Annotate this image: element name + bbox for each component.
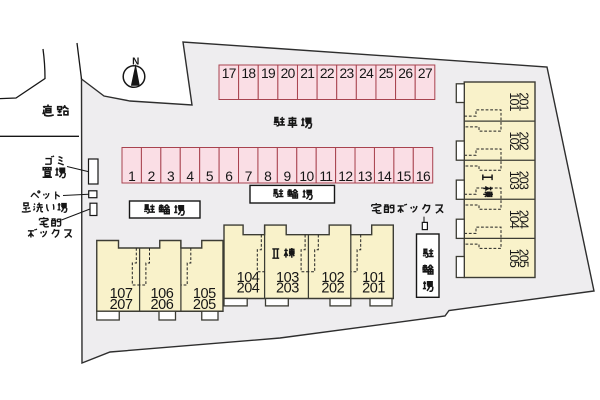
svg-text:17: 17 [222, 66, 236, 81]
svg-text:203: 203 [276, 281, 299, 297]
svg-text:12: 12 [338, 169, 352, 184]
svg-text:104: 104 [507, 210, 521, 229]
svg-text:26: 26 [398, 66, 413, 81]
svg-text:N: N [132, 57, 139, 68]
svg-text:4: 4 [186, 169, 194, 184]
svg-text:1: 1 [128, 169, 135, 184]
svg-text:204: 204 [237, 281, 260, 297]
svg-text:23: 23 [339, 66, 354, 81]
svg-text:18: 18 [241, 66, 256, 81]
svg-text:105: 105 [507, 249, 521, 268]
svg-text:27: 27 [418, 66, 432, 81]
svg-text:22: 22 [320, 66, 334, 81]
svg-text:21: 21 [300, 66, 314, 81]
svg-text:205: 205 [193, 297, 216, 313]
svg-text:207: 207 [110, 297, 133, 313]
svg-text:102: 102 [507, 132, 521, 151]
svg-text:2: 2 [148, 169, 155, 184]
svg-text:13: 13 [358, 169, 373, 184]
svg-text:8: 8 [264, 169, 272, 184]
svg-text:7: 7 [245, 169, 252, 184]
svg-text:103: 103 [507, 171, 521, 190]
svg-text:5: 5 [206, 169, 214, 184]
svg-text:24: 24 [359, 66, 374, 81]
svg-text:201: 201 [362, 281, 385, 297]
svg-text:19: 19 [261, 66, 276, 81]
svg-text:11: 11 [319, 169, 332, 184]
svg-text:15: 15 [397, 169, 412, 184]
svg-text:101: 101 [507, 92, 521, 111]
svg-text:14: 14 [377, 169, 392, 184]
svg-text:6: 6 [225, 169, 233, 184]
svg-text:206: 206 [150, 297, 173, 313]
svg-text:202: 202 [321, 281, 344, 297]
svg-text:25: 25 [379, 66, 394, 81]
svg-text:9: 9 [284, 169, 292, 184]
svg-text:10: 10 [299, 169, 314, 184]
svg-text:16: 16 [416, 169, 431, 184]
svg-text:20: 20 [281, 66, 296, 81]
svg-text:3: 3 [167, 169, 175, 184]
